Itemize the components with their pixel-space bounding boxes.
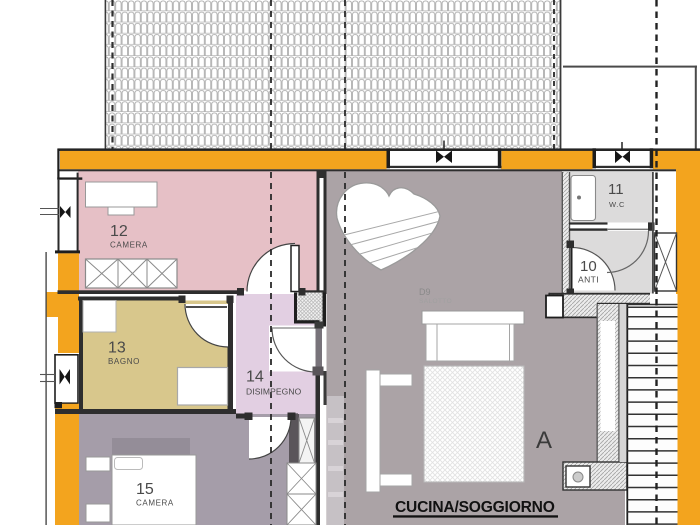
svg-text:CAMERA: CAMERA [110,241,148,250]
svg-text:14: 14 [246,369,264,386]
svg-text:DISIMPEGNO: DISIMPEGNO [246,387,302,397]
svg-text:10: 10 [580,258,597,275]
svg-text:ANTI: ANTI [578,275,599,285]
svg-text:W.C: W.C [609,200,625,209]
svg-text:11: 11 [608,181,624,198]
svg-text:12: 12 [110,223,128,240]
svg-text:SALOTTO: SALOTTO [419,298,452,305]
svg-text:A: A [536,427,552,454]
svg-text:CUCINA/SOGGIORNO: CUCINA/SOGGIORNO [395,499,555,516]
svg-text:CAMERA: CAMERA [136,499,174,508]
svg-text:13: 13 [108,340,126,357]
svg-text:15: 15 [136,481,154,498]
svg-text:BAGNO: BAGNO [108,357,140,366]
svg-text:D9: D9 [419,287,431,297]
